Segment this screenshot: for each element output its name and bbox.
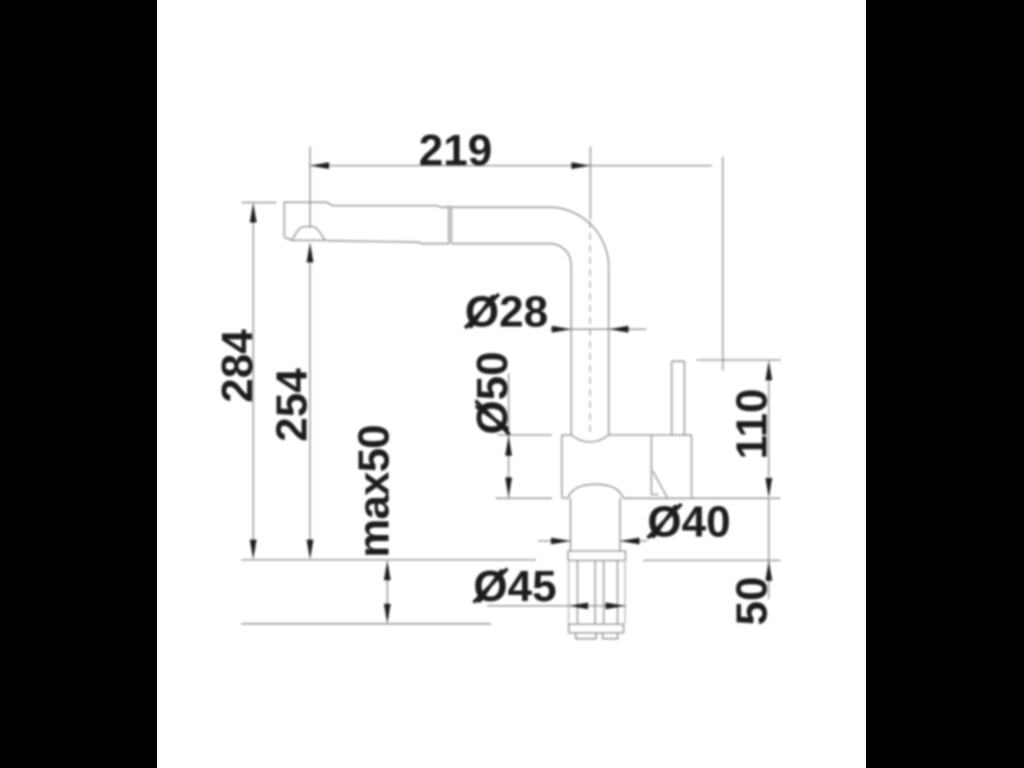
- svg-text:284: 284: [213, 329, 262, 403]
- svg-text:110: 110: [728, 389, 777, 460]
- svg-text:254: 254: [268, 368, 317, 442]
- svg-text:max50: max50: [350, 425, 399, 558]
- svg-text:Ø28: Ø28: [465, 288, 548, 337]
- svg-text:Ø40: Ø40: [647, 498, 730, 547]
- svg-text:Ø45: Ø45: [473, 562, 556, 611]
- svg-text:219: 219: [419, 126, 492, 175]
- svg-text:50: 50: [728, 577, 777, 626]
- svg-text:Ø50: Ø50: [468, 351, 517, 434]
